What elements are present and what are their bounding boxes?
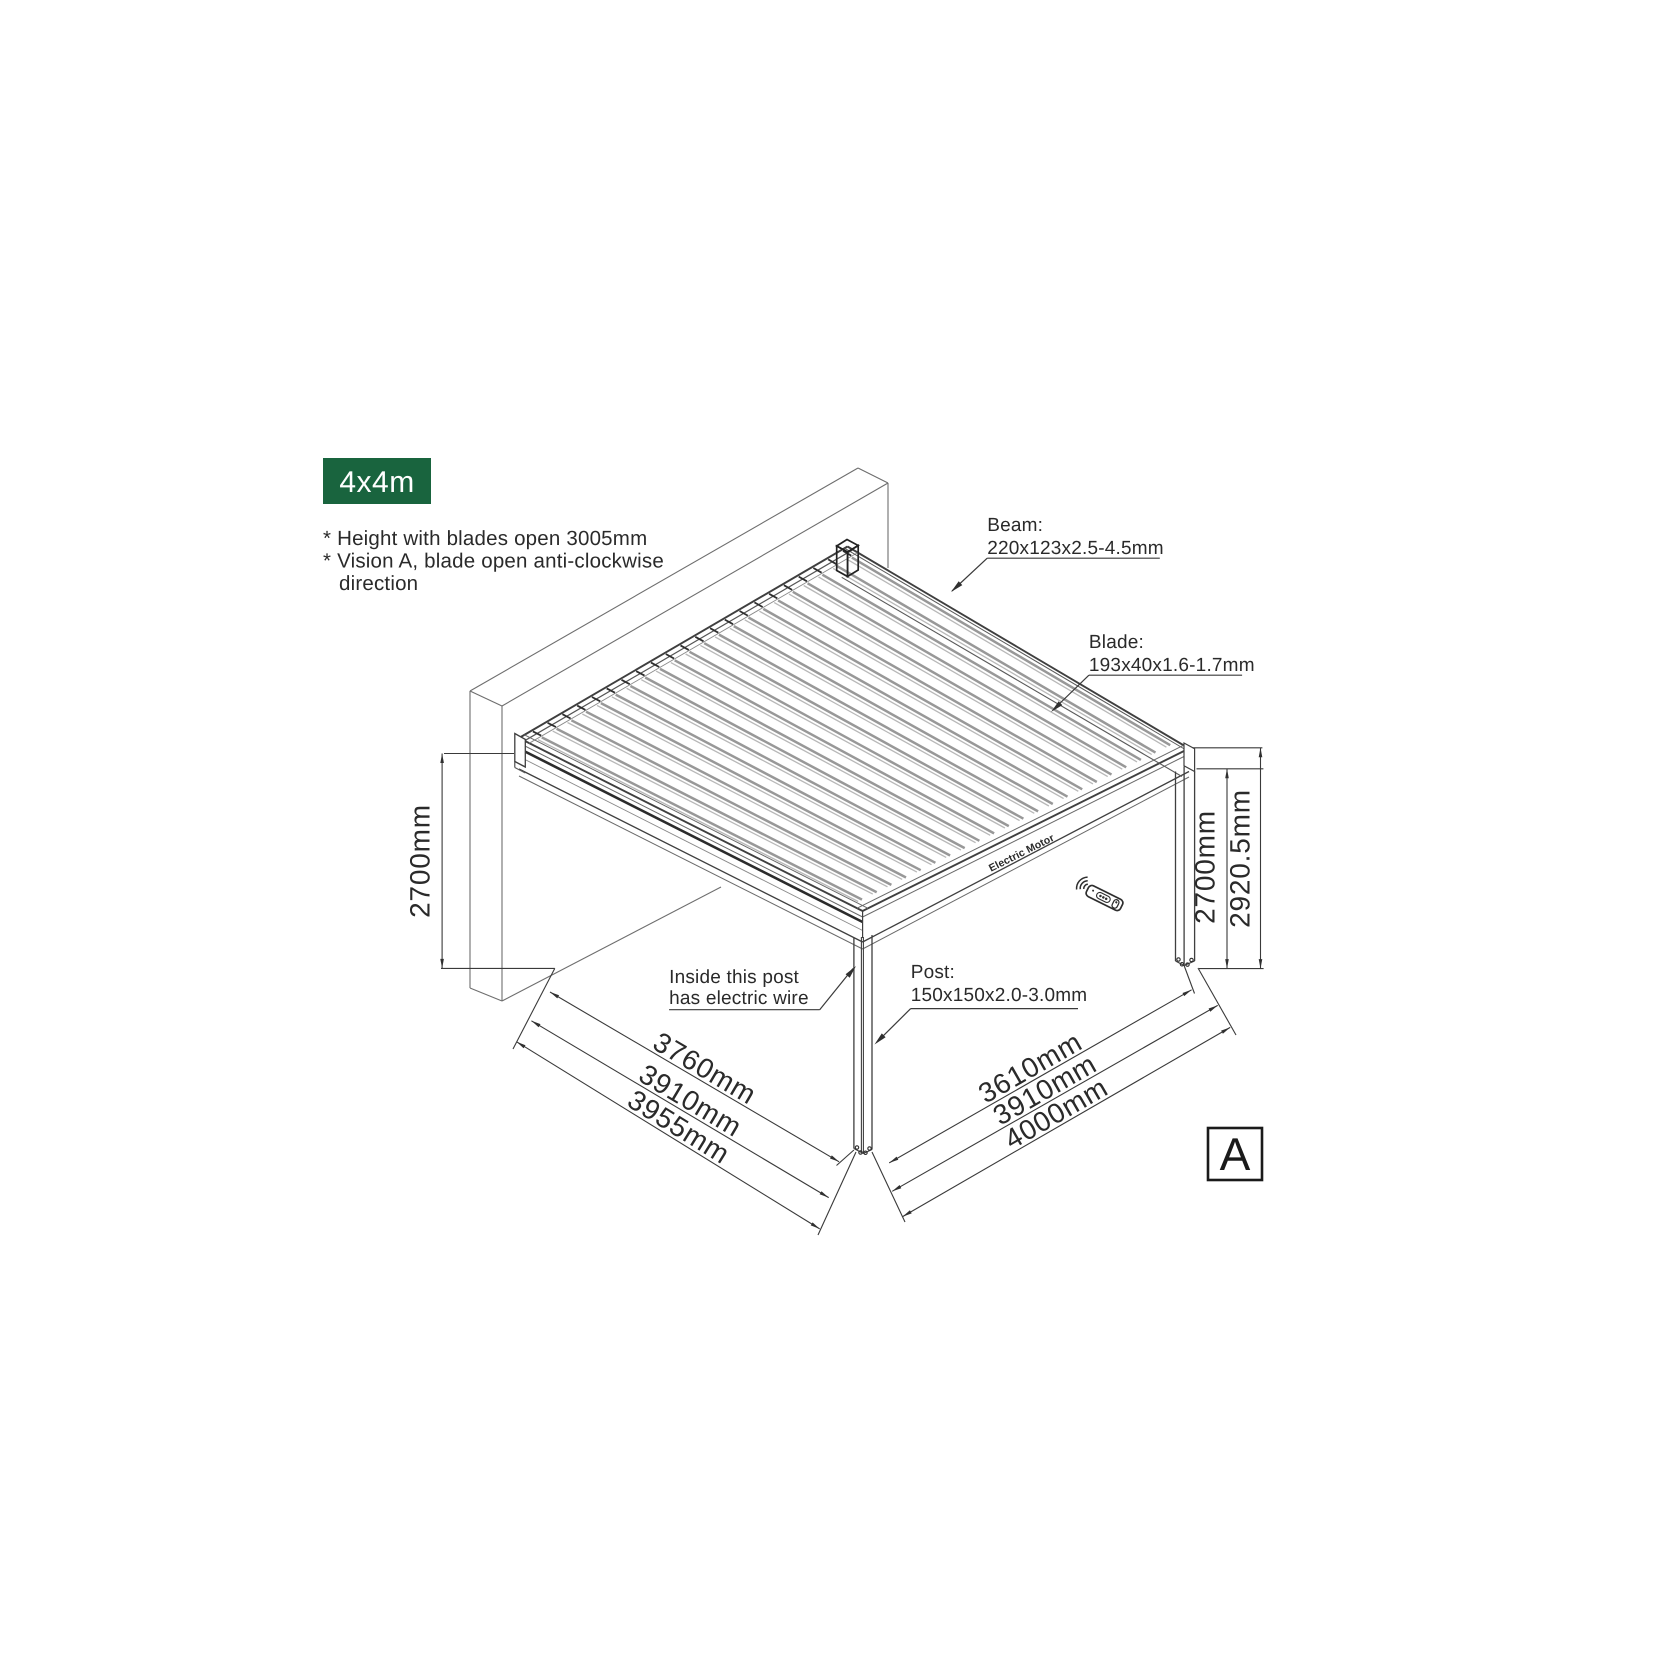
svg-text:220x123x2.5-4.5mm: 220x123x2.5-4.5mm [987,538,1164,559]
svg-text:2700mm: 2700mm [1190,810,1221,924]
svg-text:direction: direction [339,572,418,595]
svg-text:Beam:: Beam: [987,515,1043,536]
svg-text:Post:: Post: [911,962,955,983]
svg-text:Blade:: Blade: [1089,632,1144,653]
svg-text:193x40x1.6-1.7mm: 193x40x1.6-1.7mm [1089,655,1255,676]
svg-text:* Vision A, blade open anti-cl: * Vision A, blade open anti-clockwise [323,550,664,573]
svg-text:* Height with blades open 3005: * Height with blades open 3005mm [323,527,647,550]
svg-text:2700mm: 2700mm [405,804,436,918]
svg-text:4x4m: 4x4m [339,466,414,499]
svg-text:2920.5mm: 2920.5mm [1225,789,1256,928]
svg-text:has electric wire: has electric wire [669,988,809,1009]
svg-text:150x150x2.0-3.0mm: 150x150x2.0-3.0mm [911,985,1088,1006]
svg-text:A: A [1220,1128,1251,1180]
svg-text:Inside this post: Inside this post [669,967,799,988]
